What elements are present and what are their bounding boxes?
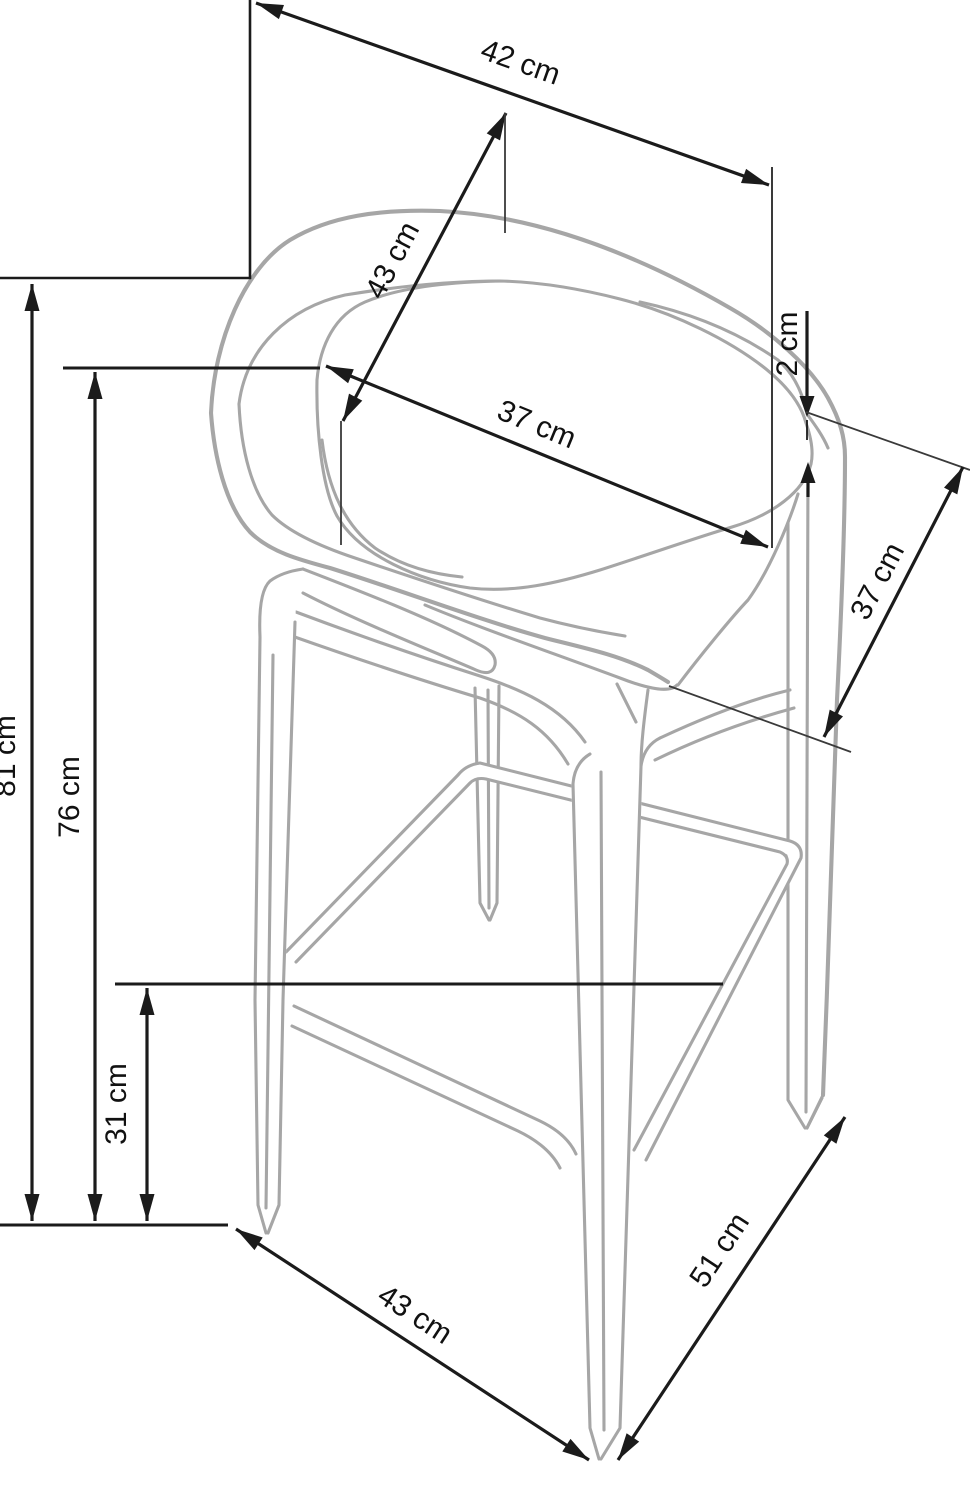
svg-text:81 cm: 81 cm: [0, 715, 22, 797]
svg-text:76 cm: 76 cm: [53, 756, 86, 838]
svg-text:2 cm: 2 cm: [771, 311, 804, 376]
svg-text:31 cm: 31 cm: [100, 1063, 133, 1145]
